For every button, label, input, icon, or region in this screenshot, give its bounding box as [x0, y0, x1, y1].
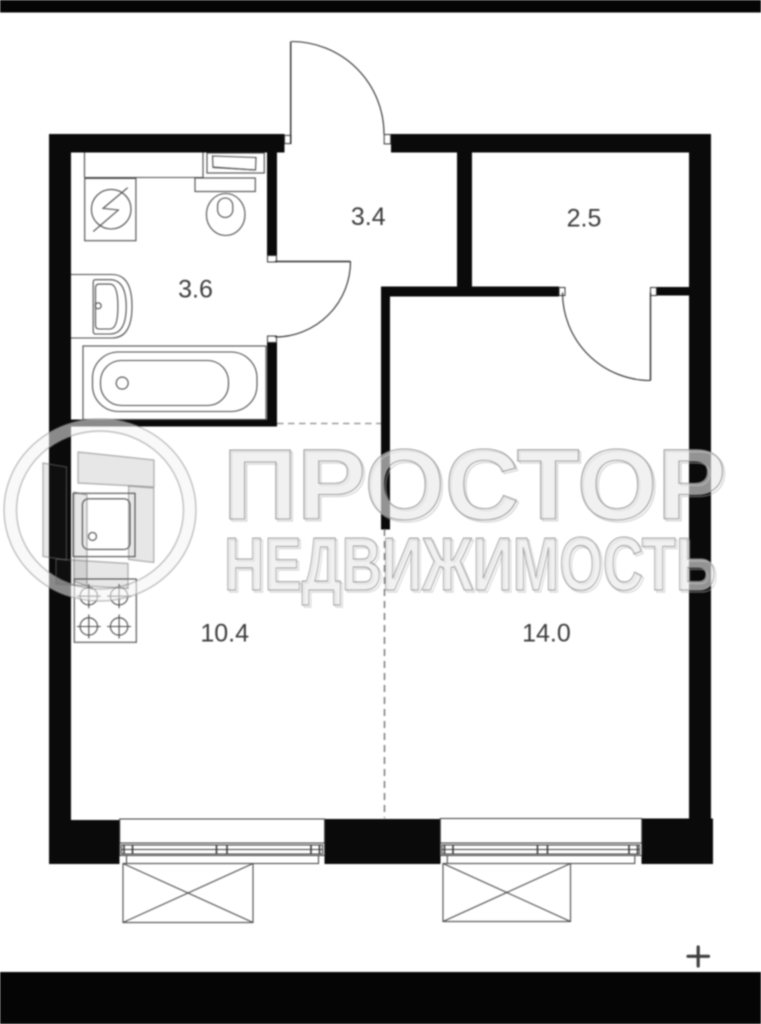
- svg-text:3.6: 3.6: [178, 276, 213, 304]
- svg-text:2.5: 2.5: [567, 205, 602, 233]
- svg-text:10.4: 10.4: [200, 620, 249, 648]
- svg-text:14.0: 14.0: [522, 620, 571, 648]
- svg-text:3.4: 3.4: [351, 203, 386, 231]
- svg-text:НЕДВИЖИМОСТЬ: НЕДВИЖИМОСТЬ: [224, 522, 716, 606]
